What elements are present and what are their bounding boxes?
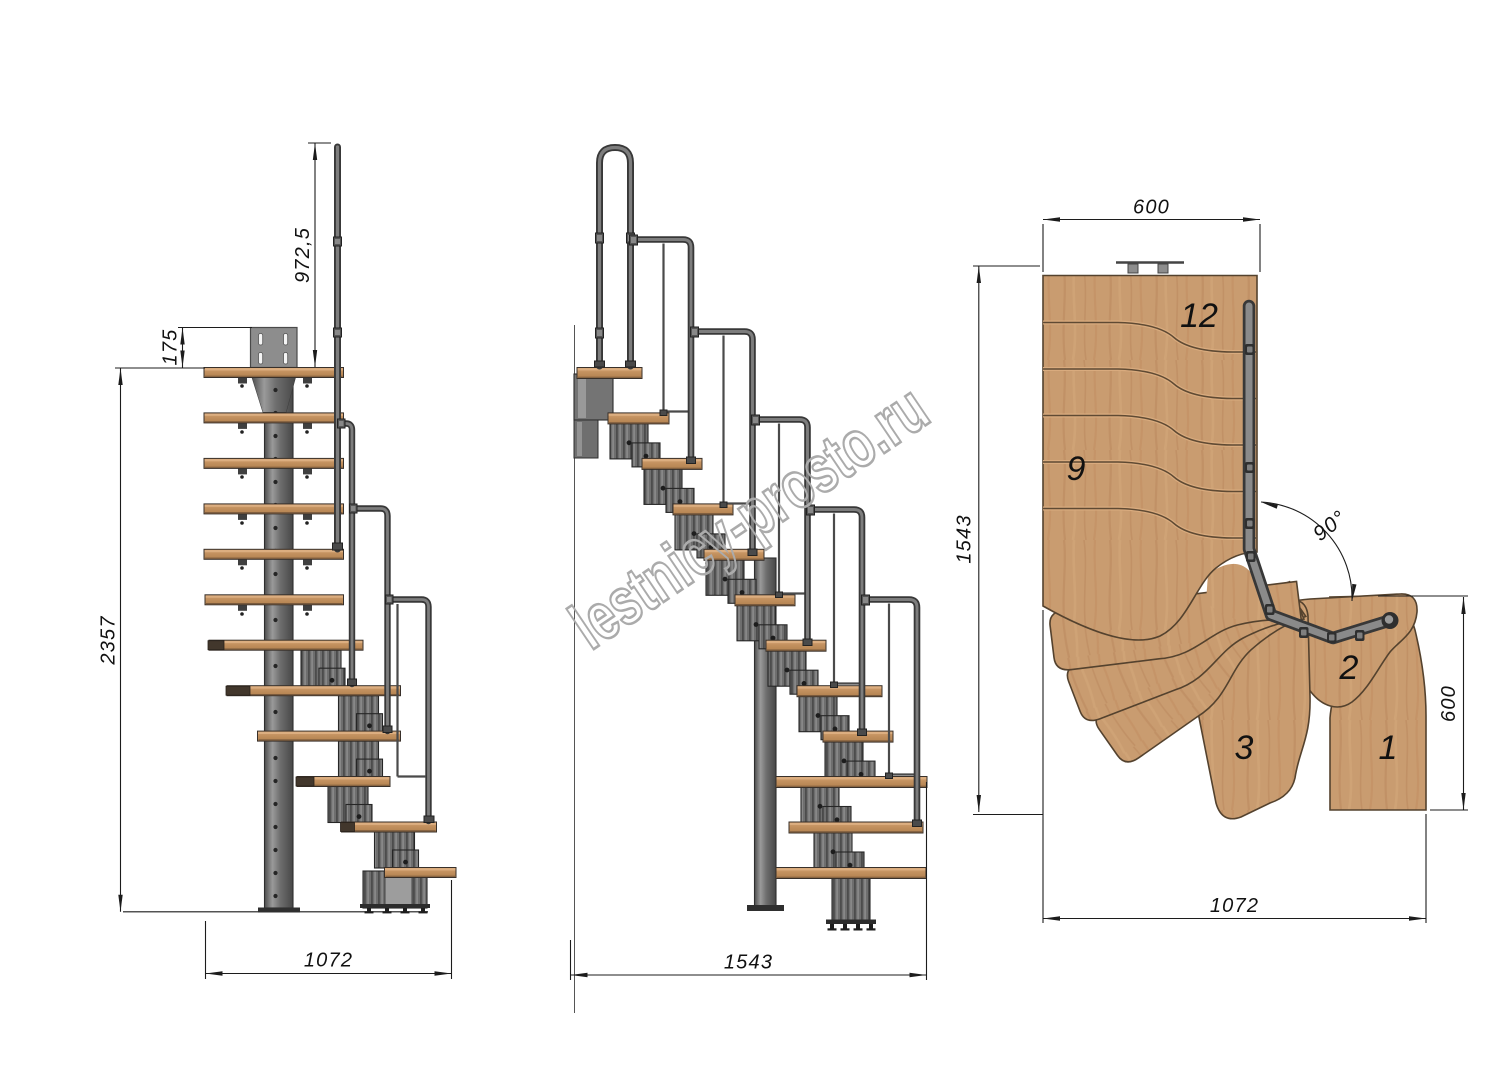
svg-text:2357: 2357 [98, 615, 120, 665]
svg-text:1543: 1543 [724, 952, 773, 974]
svg-text:1: 1 [1379, 729, 1398, 767]
svg-text:175: 175 [160, 329, 182, 366]
svg-text:600: 600 [1133, 197, 1170, 219]
svg-text:9: 9 [1067, 450, 1086, 488]
svg-text:3: 3 [1235, 729, 1254, 767]
svg-text:1072: 1072 [304, 950, 353, 972]
svg-text:972,5: 972,5 [292, 227, 314, 283]
svg-text:1543: 1543 [954, 514, 976, 563]
svg-text:1072: 1072 [1210, 895, 1259, 917]
svg-text:12: 12 [1180, 297, 1218, 335]
svg-text:600: 600 [1438, 685, 1460, 722]
svg-text:2: 2 [1339, 649, 1359, 687]
